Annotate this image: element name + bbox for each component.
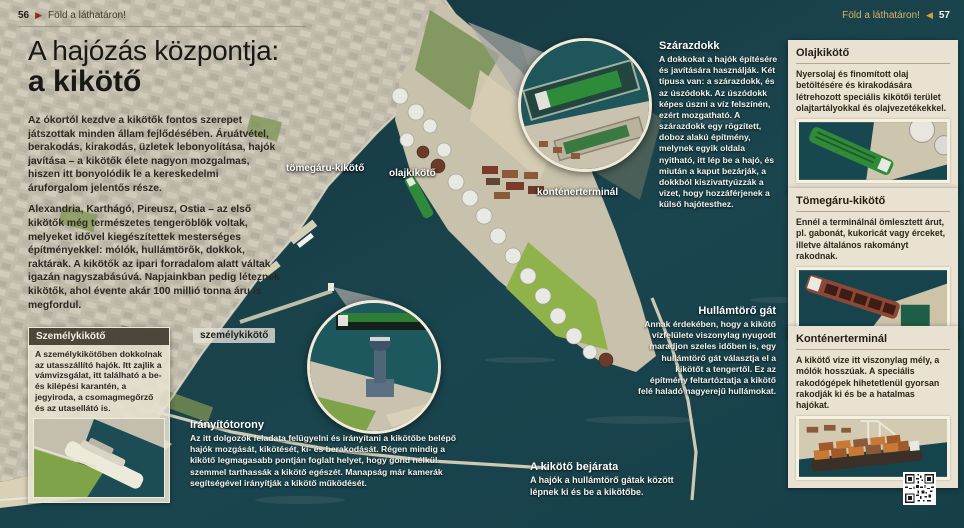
intro-paragraph-1: Az ókortól kezdve a kikötők fontos szere… xyxy=(28,114,281,195)
header-rule xyxy=(18,26,306,27)
annotation-control-tower-title: Irányítótorony xyxy=(190,419,458,431)
sidebar-container-title: Konténerterminál xyxy=(796,333,950,350)
sidebar-box-container-terminal: Konténerterminál A kikötő vize itt viszo… xyxy=(788,326,958,488)
drydock-inset-photo xyxy=(518,38,652,172)
passenger-port-body: A személykikötőben dokkolnak az utasszál… xyxy=(29,345,169,418)
map-label-passenger-port: személykikötő xyxy=(193,328,275,343)
page-title-line1: A hajózás központja: xyxy=(28,36,279,66)
annotation-harbor-entrance-body: A hajók a hullámtörő gátak között lépnek… xyxy=(530,475,698,498)
passenger-port-callout: Személykikötő A személykikötőben dokkoln… xyxy=(28,327,170,503)
sidebar-oil-body: Nyersolaj és finomított olaj betöltésére… xyxy=(796,69,950,114)
chapter-label-right: Föld a láthatáron! xyxy=(842,10,920,21)
annotation-control-tower: Irányítótorony Az itt dolgozók feladata … xyxy=(190,419,458,489)
sidebar-box-bulk-port: Tömegáru-kikötő Ennél a terminálnál ömle… xyxy=(788,188,958,339)
arrow-right-icon: ▶ xyxy=(35,10,42,21)
passenger-port-title: Személykikötő xyxy=(29,328,169,345)
control-tower-inset-photo xyxy=(307,300,441,434)
intro-paragraph-2: Alexandria, Karthágó, Pireusz, Ostia – a… xyxy=(28,203,281,312)
intro-text: Az ókortól kezdve a kikötők fontos szere… xyxy=(28,114,281,312)
annotation-harbor-entrance: A kikötő bejárata A hajók a hullámtörő g… xyxy=(530,461,698,498)
annotation-breakwater: Hullámtörő gát Annak érdekében, hogy a k… xyxy=(636,305,776,397)
page-number-left: 56 xyxy=(18,10,29,21)
annotation-breakwater-title: Hullámtörő gát xyxy=(636,305,776,317)
qr-code xyxy=(903,472,936,505)
map-label-oil-port: olajkikötő xyxy=(389,168,436,179)
sidebar-bulk-body: Ennél a terminálnál ömlesztett árut, pl.… xyxy=(796,217,950,262)
annotation-drydock-body: A dokkokat a hajók építésére és javításá… xyxy=(659,54,779,210)
sidebar-container-body: A kikötő vize itt viszonylag mély, a mól… xyxy=(796,355,950,411)
oil-tanker-photo xyxy=(796,119,950,183)
page-title-line2: a kikötő xyxy=(28,66,279,98)
annotation-breakwater-body: Annak érdekében, hogy a kikötő vízfelüle… xyxy=(636,319,776,397)
container-ship-photo xyxy=(796,416,950,480)
annotation-drydock-title: Szárazdokk xyxy=(659,40,779,52)
annotation-harbor-entrance-title: A kikötő bejárata xyxy=(530,461,698,473)
magazine-spread: 56 ▶ Föld a láthatáron! Föld a láthatáro… xyxy=(0,0,964,528)
chapter-label-left: Föld a láthatáron! xyxy=(48,10,126,21)
arrow-left-icon: ◀ xyxy=(926,10,933,21)
sidebar-oil-title: Olajkikötő xyxy=(796,47,950,64)
bulk-carrier-photo xyxy=(796,267,950,331)
map-label-container-terminal: konténerterminál xyxy=(537,187,618,198)
passenger-port-photo xyxy=(33,418,165,498)
page-title: A hajózás központja: a kikötő xyxy=(28,36,279,99)
page-header-left: 56 ▶ Föld a láthatáron! xyxy=(18,10,126,22)
sidebar-box-oil-port: Olajkikötő Nyersolaj és finomított olaj … xyxy=(788,40,958,191)
annotation-drydock: Szárazdokk A dokkokat a hajók építésére … xyxy=(659,40,779,210)
page-number-right: 57 xyxy=(939,10,950,21)
sidebar-bulk-title: Tömegáru-kikötő xyxy=(796,195,950,212)
page-header-right: Föld a láthatáron! ◀ 57 xyxy=(842,10,950,21)
annotation-control-tower-body: Az itt dolgozók feladata felügyelni és i… xyxy=(190,433,458,489)
map-label-bulk-port: tömegáru-kikötő xyxy=(286,163,364,174)
